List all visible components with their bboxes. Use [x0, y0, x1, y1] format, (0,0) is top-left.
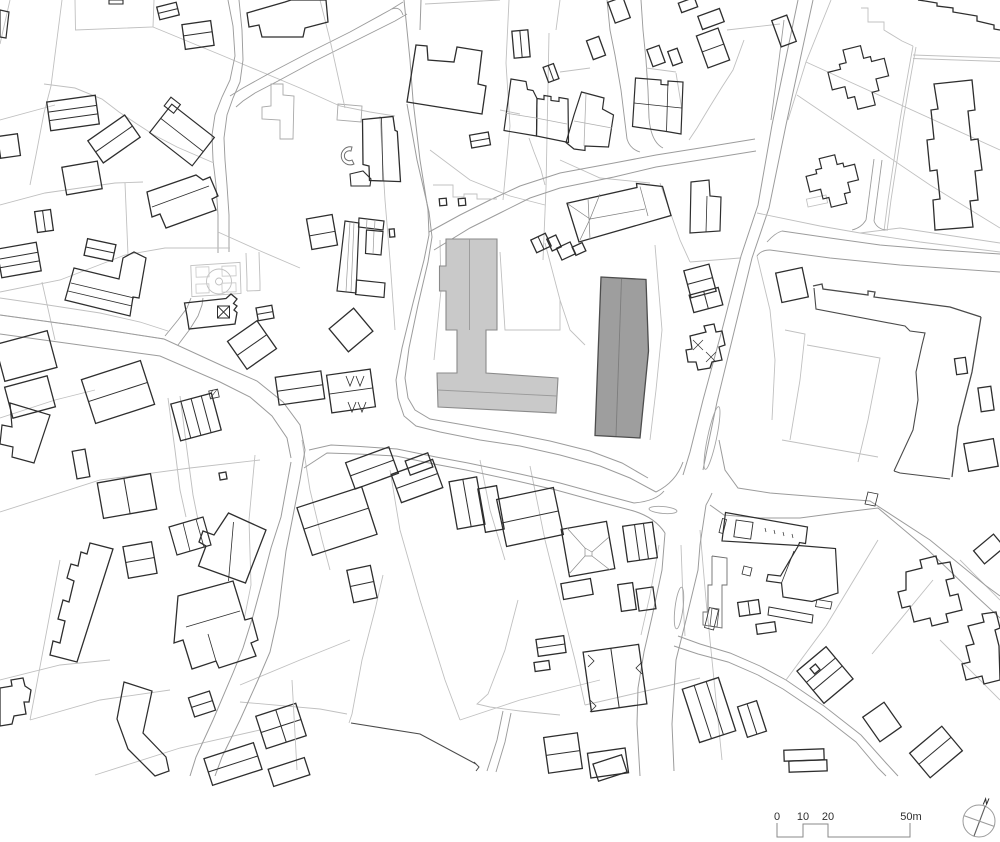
svg-text:10: 10 [797, 811, 809, 823]
svg-text:50m: 50m [900, 811, 921, 823]
svg-text:20: 20 [822, 811, 834, 823]
svg-text:0: 0 [774, 811, 780, 823]
